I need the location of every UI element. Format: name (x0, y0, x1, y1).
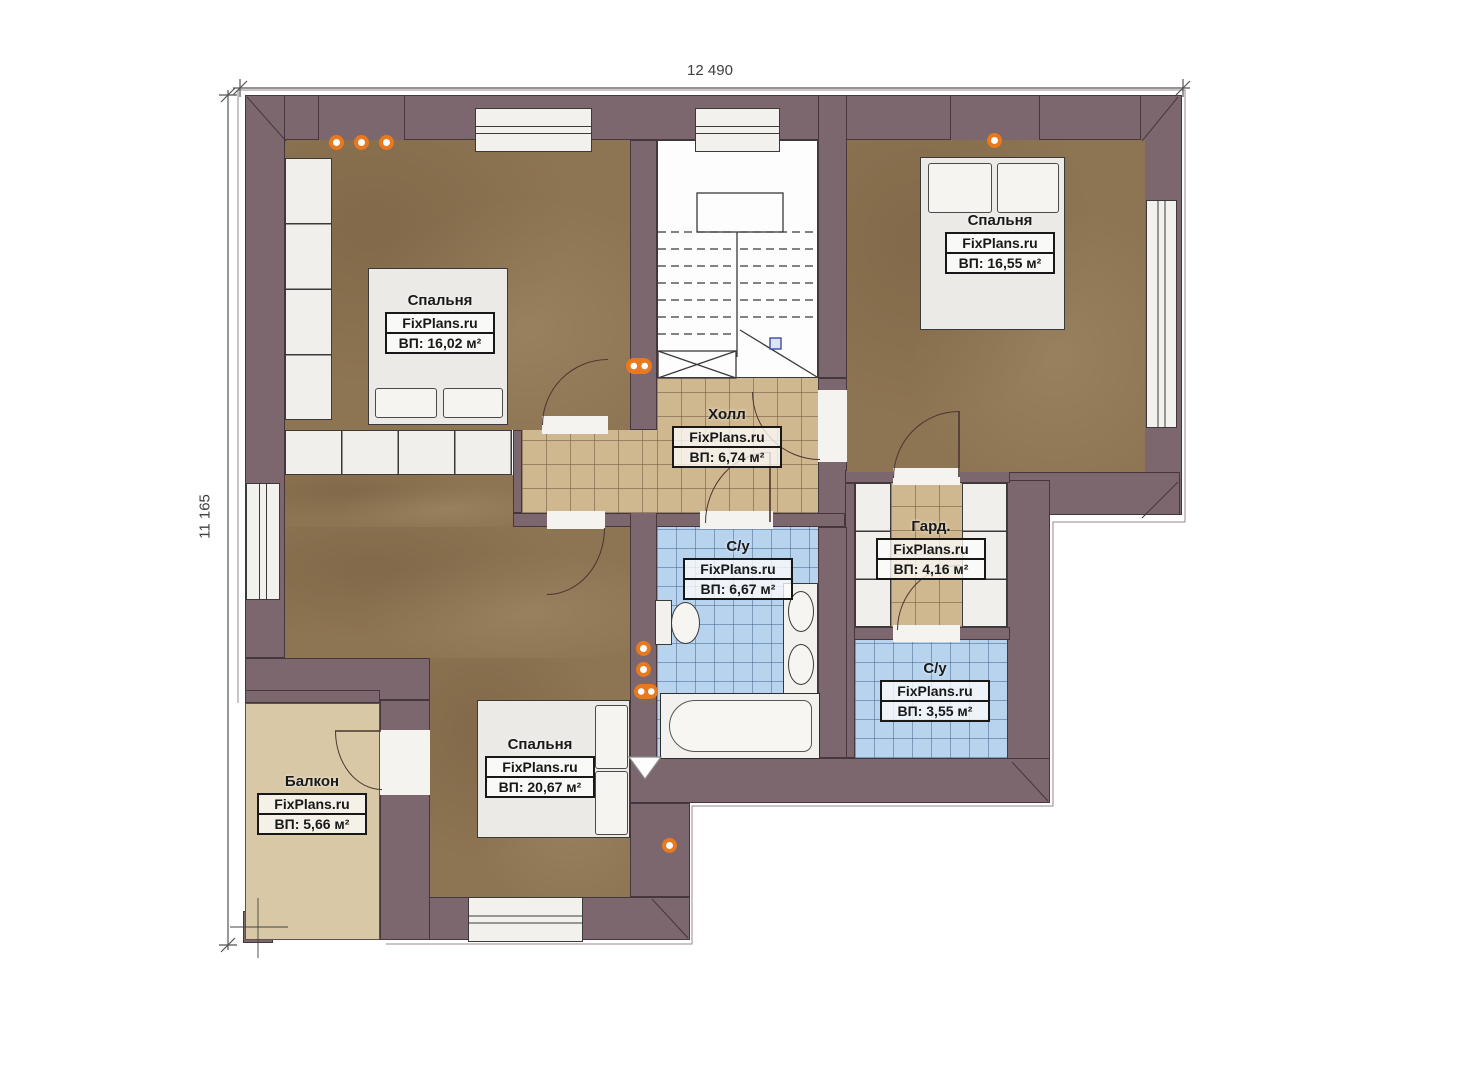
room-label-wardrobe: Гард. FixPlans.ru ВП: 4,16 м² (871, 518, 991, 580)
room-name: Спальня (478, 736, 602, 753)
room-label-bedroom-top-left: Спальня FixPlans.ru ВП: 16,02 м² (375, 292, 505, 354)
stairwell-floor (657, 140, 818, 378)
door-opening-bathroom-center (700, 511, 773, 529)
door-opening-bedroom-bottom (547, 511, 605, 529)
bathtub-basin (669, 700, 812, 752)
room-name: С/у (875, 660, 995, 677)
sink-basin (788, 644, 814, 685)
window-left-wall (246, 483, 280, 600)
door-opening-balcony (380, 730, 430, 795)
window-stairs (695, 108, 780, 152)
wall-w-balcony-edge (245, 690, 380, 703)
window-bedroom-bottom (468, 897, 583, 942)
door-opening-bedroom-top-right (818, 390, 847, 462)
room-label-bathroom-center: С/у FixPlans.ru ВП: 6,67 м² (678, 538, 798, 600)
window-top-left (475, 108, 592, 152)
wall-light (626, 358, 652, 374)
room-area: ВП: 16,55 м² (947, 254, 1053, 272)
brand-watermark: FixPlans.ru (878, 540, 984, 560)
room-label-hall: Холл FixPlans.ru ВП: 6,74 м² (666, 406, 788, 468)
room-info-box: FixPlans.ru ВП: 20,67 м² (485, 756, 595, 798)
floor-plan-canvas: 12 490 11 165 Спальня FixPlans.ru ВП: 16… (0, 0, 1473, 1080)
room-area: ВП: 6,74 м² (674, 448, 780, 466)
room-name: Спальня (375, 292, 505, 309)
room-label-bathroom-right: С/у FixPlans.ru ВП: 3,55 м² (875, 660, 995, 722)
window-bedroom-top-right (1146, 200, 1177, 428)
room-name: Холл (666, 406, 788, 423)
pillow (443, 388, 503, 418)
room-info-box: FixPlans.ru ВП: 6,67 м² (683, 558, 793, 600)
ceiling-light (354, 135, 369, 150)
room-label-bedroom-top-right: Спальня FixPlans.ru ВП: 16,55 м² (935, 212, 1065, 274)
room-area: ВП: 20,67 м² (487, 778, 593, 796)
room-info-box: FixPlans.ru ВП: 4,16 м² (876, 538, 986, 580)
brand-watermark: FixPlans.ru (882, 682, 988, 702)
dimension-top: 12 490 (640, 62, 780, 79)
brand-watermark: FixPlans.ru (387, 314, 493, 334)
wall-w-bath1-right (818, 527, 847, 758)
room-info-box: FixPlans.ru ВП: 3,55 м² (880, 680, 990, 722)
room-label-balcony: Балкон FixPlans.ru ВП: 5,66 м² (250, 773, 374, 835)
room-name: С/у (678, 538, 798, 555)
brand-watermark: FixPlans.ru (947, 234, 1053, 254)
brand-watermark: FixPlans.ru (685, 560, 791, 580)
room-name: Балкон (250, 773, 374, 790)
ceiling-light (662, 838, 677, 853)
room-label-bedroom-bottom: Спальня FixPlans.ru ВП: 20,67 м² (478, 736, 602, 798)
room-area: ВП: 4,16 м² (878, 560, 984, 578)
wall-light (634, 684, 658, 699)
pillow (375, 388, 437, 418)
room-area: ВП: 6,67 м² (685, 580, 791, 598)
door-opening-bedroom-top-left (542, 416, 608, 434)
ceiling-light (379, 135, 394, 150)
brand-watermark: FixPlans.ru (487, 758, 593, 778)
dimension-left: 11 165 (197, 472, 214, 562)
room-info-box: FixPlans.ru ВП: 16,55 м² (945, 232, 1055, 274)
wall-w-stair-right (818, 95, 847, 378)
bedroom-bottom-floor-a (285, 475, 513, 527)
wall-w-hallext-left (513, 430, 522, 513)
ceiling-light (329, 135, 344, 150)
room-name: Спальня (935, 212, 1065, 229)
room-area: ВП: 3,55 м² (882, 702, 988, 720)
pillow (928, 163, 992, 213)
room-area: ВП: 5,66 м² (259, 815, 365, 833)
door-opening-wardrobe (893, 468, 960, 485)
hall-ext-floor (522, 430, 657, 513)
closet-bedroom-top-left (285, 158, 332, 420)
bedroom-bottom-floor-b (285, 527, 630, 658)
toilet-bowl (671, 602, 700, 644)
closet-bedroom-bottom (285, 430, 512, 475)
wall-w-stair-left (630, 140, 657, 430)
wall-w-bed3-corner (630, 803, 690, 897)
room-info-box: FixPlans.ru ВП: 6,74 м² (672, 426, 782, 468)
brand-watermark: FixPlans.ru (259, 795, 365, 815)
brand-watermark: FixPlans.ru (674, 428, 780, 448)
toilet-tank (655, 600, 672, 645)
ceiling-light (636, 662, 651, 677)
door-opening-bathroom-right (893, 625, 960, 642)
pillow (997, 163, 1059, 213)
room-area: ВП: 16,02 м² (387, 334, 493, 352)
wall-w-right-block (1007, 480, 1050, 803)
room-name: Гард. (871, 518, 991, 535)
room-info-box: FixPlans.ru ВП: 16,02 м² (385, 312, 495, 354)
wall-w-bottom-center (630, 758, 1050, 803)
room-info-box: FixPlans.ru ВП: 5,66 м² (257, 793, 367, 835)
ceiling-light (636, 641, 651, 656)
ceiling-light (987, 133, 1002, 148)
